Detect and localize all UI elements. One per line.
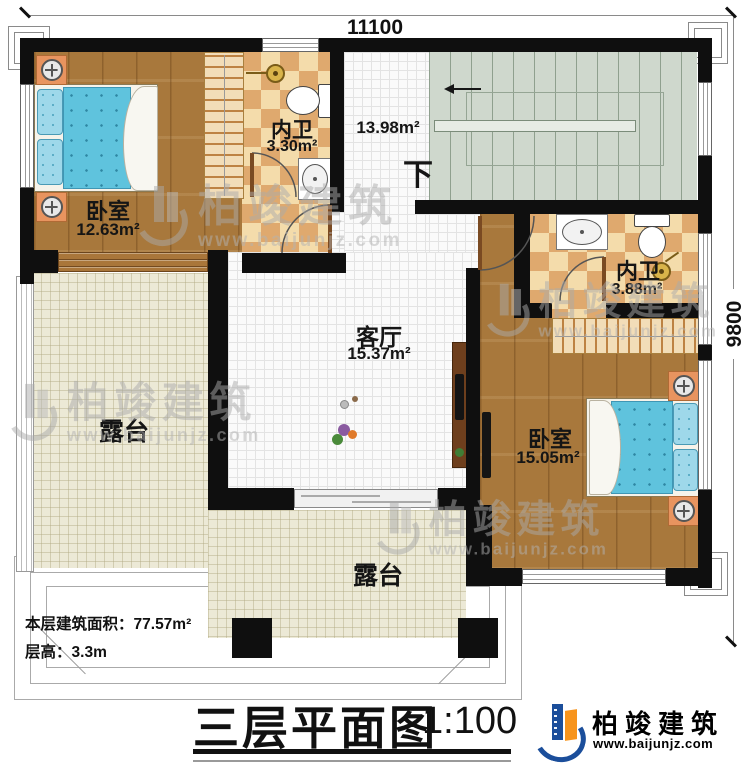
floor-plan-canvas: 11100 9800 — [0, 0, 750, 771]
bathroom2-area: 3.88m² — [598, 281, 676, 299]
bedroom1-window — [20, 84, 34, 188]
bathroom1-window — [262, 38, 319, 52]
brand-logo-building-blue — [552, 704, 563, 740]
title-underline-thin — [193, 760, 511, 762]
floor-area-value: 77.57m² — [134, 616, 192, 633]
living-area: 15.37m² — [340, 344, 418, 364]
brand-logo-building-orange — [565, 709, 577, 741]
terrace-left-label: 露台 — [84, 412, 164, 448]
title-underline — [193, 749, 511, 754]
terrace-bottom-label: 露台 — [338, 556, 418, 592]
door-swings — [0, 0, 750, 771]
bedroom1-terrace-sliding-door — [58, 252, 208, 272]
floor-height-label: 层高： — [25, 644, 72, 661]
floor-height-value: 3.3m — [72, 644, 107, 661]
hall-area: 13.98m² — [342, 118, 434, 138]
bedroom1-area: 12.63m² — [52, 220, 164, 240]
living-terrace-sliding-door — [294, 489, 438, 508]
floor-height-info: 层高：3.3m — [25, 640, 107, 662]
bedroom2-area: 15.05m² — [502, 448, 594, 468]
floor-area-label: 本层建筑面积： — [25, 616, 134, 633]
stair-direction-label: 下 — [398, 150, 438, 194]
drawing-scale: 1:100 — [422, 700, 517, 743]
staircase-window — [698, 82, 712, 156]
bathroom1-area: 3.30m² — [252, 138, 332, 156]
bedroom2-east-window — [698, 360, 712, 490]
brand-website: www.baijunjz.com — [593, 736, 713, 751]
bathroom2-window — [698, 233, 712, 345]
floor-area-info: 本层建筑面积：77.57m² — [25, 612, 191, 634]
bedroom2-south-window — [522, 569, 666, 584]
